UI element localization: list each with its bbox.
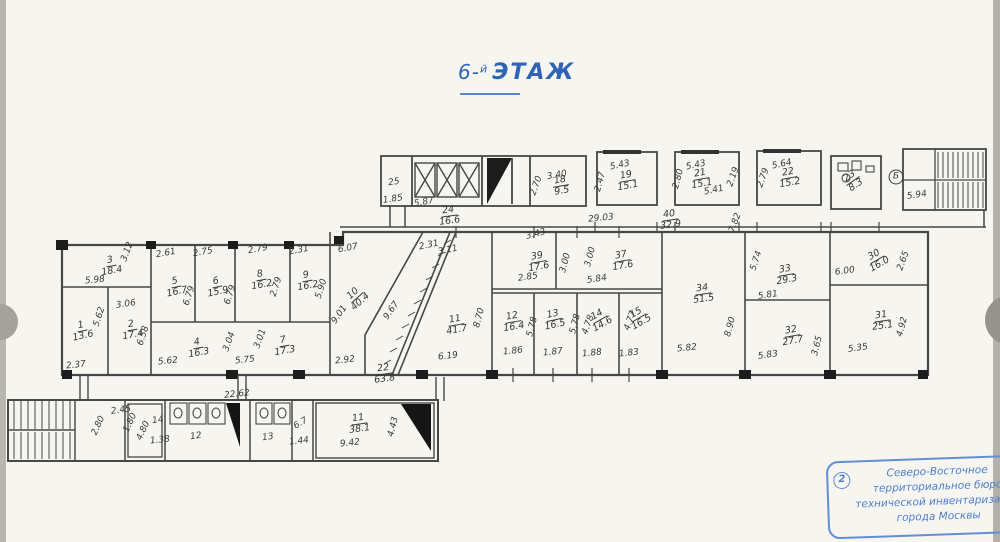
bottom-strip-walls (8, 375, 444, 461)
stair-shade-icon (487, 158, 512, 204)
bti-stamp: 2 Северо-Восточное территориальное бюро … (826, 455, 1000, 540)
wc-fixtures-icon (838, 161, 874, 182)
top-strip-walls (340, 149, 986, 232)
elevator-shafts-icon (415, 163, 479, 197)
main-walls (56, 226, 928, 382)
scanned-floorplan-page: 6-й ЭТАЖ (0, 0, 1000, 542)
stamp-number-badge: 2 (833, 472, 851, 490)
stair-shade-icon (226, 403, 240, 447)
stair-shade-icon (401, 404, 431, 451)
